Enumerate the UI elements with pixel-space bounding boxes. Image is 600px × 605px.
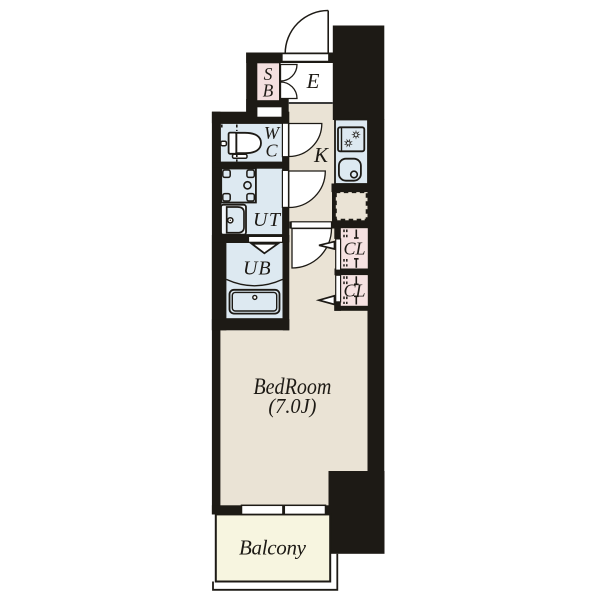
svg-text:K: K xyxy=(313,143,329,167)
svg-text:UT: UT xyxy=(253,209,282,231)
svg-text:E: E xyxy=(306,69,320,93)
svg-text:C: C xyxy=(265,140,278,160)
svg-text:Balcony: Balcony xyxy=(239,535,307,559)
svg-text:UB: UB xyxy=(243,258,271,280)
svg-text:CL: CL xyxy=(343,281,365,301)
svg-text:B: B xyxy=(263,81,274,101)
svg-text:CL: CL xyxy=(343,239,365,259)
svg-text:(7.0J): (7.0J) xyxy=(268,394,316,418)
